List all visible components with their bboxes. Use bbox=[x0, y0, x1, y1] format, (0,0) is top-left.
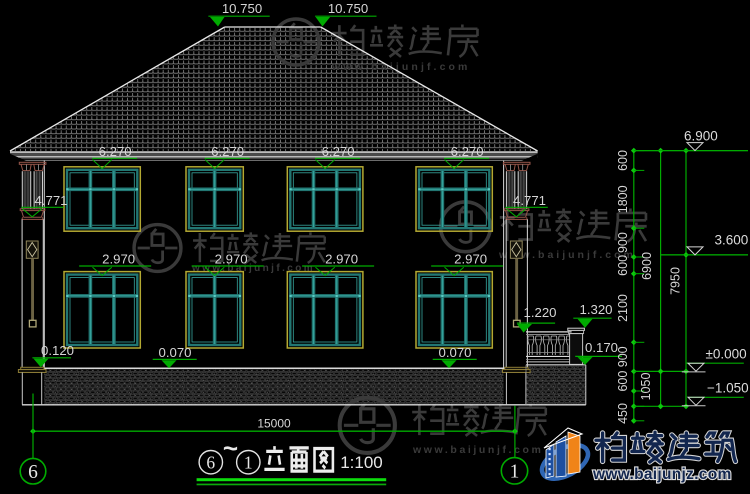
svg-text:900: 900 bbox=[616, 232, 630, 253]
svg-text:6.270: 6.270 bbox=[322, 144, 355, 159]
svg-text:0.070: 0.070 bbox=[438, 345, 471, 360]
svg-text:3.600: 3.600 bbox=[715, 232, 749, 247]
svg-text:6: 6 bbox=[206, 452, 215, 472]
svg-text:1.320: 1.320 bbox=[579, 302, 612, 317]
svg-text:4.771: 4.771 bbox=[513, 193, 546, 208]
svg-text:www.baijunjf.com: www.baijunjf.com bbox=[331, 61, 470, 73]
svg-text:900: 900 bbox=[616, 346, 630, 367]
svg-text:7950: 7950 bbox=[668, 267, 682, 295]
svg-text:600: 600 bbox=[616, 255, 630, 276]
svg-text:2.970: 2.970 bbox=[454, 252, 487, 267]
svg-text:10.750: 10.750 bbox=[328, 1, 368, 16]
svg-text:0.120: 0.120 bbox=[41, 343, 74, 358]
svg-text:1050: 1050 bbox=[639, 373, 653, 401]
svg-text:600: 600 bbox=[616, 371, 630, 392]
svg-text:6.270: 6.270 bbox=[99, 144, 132, 159]
svg-text:4.771: 4.771 bbox=[34, 193, 67, 208]
svg-text:1: 1 bbox=[510, 461, 520, 482]
svg-text:2.970: 2.970 bbox=[325, 252, 358, 267]
svg-text:~: ~ bbox=[223, 433, 238, 463]
svg-text:1: 1 bbox=[244, 452, 253, 472]
svg-text:www.baijunjz.com: www.baijunjz.com bbox=[592, 466, 732, 483]
svg-text:±0.000: ±0.000 bbox=[706, 347, 747, 362]
svg-text:−1.050: −1.050 bbox=[707, 380, 749, 395]
svg-text:10.750: 10.750 bbox=[222, 1, 262, 16]
svg-text:450: 450 bbox=[616, 403, 630, 424]
svg-text:www.baijunjf.com: www.baijunjf.com bbox=[412, 444, 543, 456]
svg-text:6: 6 bbox=[28, 462, 38, 483]
svg-text:15000: 15000 bbox=[257, 417, 291, 431]
svg-text:6900: 6900 bbox=[640, 252, 654, 280]
svg-text:0.070: 0.070 bbox=[158, 345, 191, 360]
svg-text:1:100: 1:100 bbox=[340, 453, 383, 472]
svg-text:6.270: 6.270 bbox=[451, 144, 484, 159]
svg-text:2100: 2100 bbox=[616, 294, 630, 322]
svg-text:6.900: 6.900 bbox=[684, 129, 718, 144]
svg-text:6.270: 6.270 bbox=[211, 144, 244, 159]
svg-text:1.220: 1.220 bbox=[523, 305, 556, 320]
svg-text:600: 600 bbox=[616, 150, 630, 171]
svg-text:0.170: 0.170 bbox=[585, 340, 618, 355]
svg-text:2.970: 2.970 bbox=[215, 252, 248, 267]
svg-text:1800: 1800 bbox=[616, 185, 630, 213]
svg-text:2.970: 2.970 bbox=[102, 252, 135, 267]
